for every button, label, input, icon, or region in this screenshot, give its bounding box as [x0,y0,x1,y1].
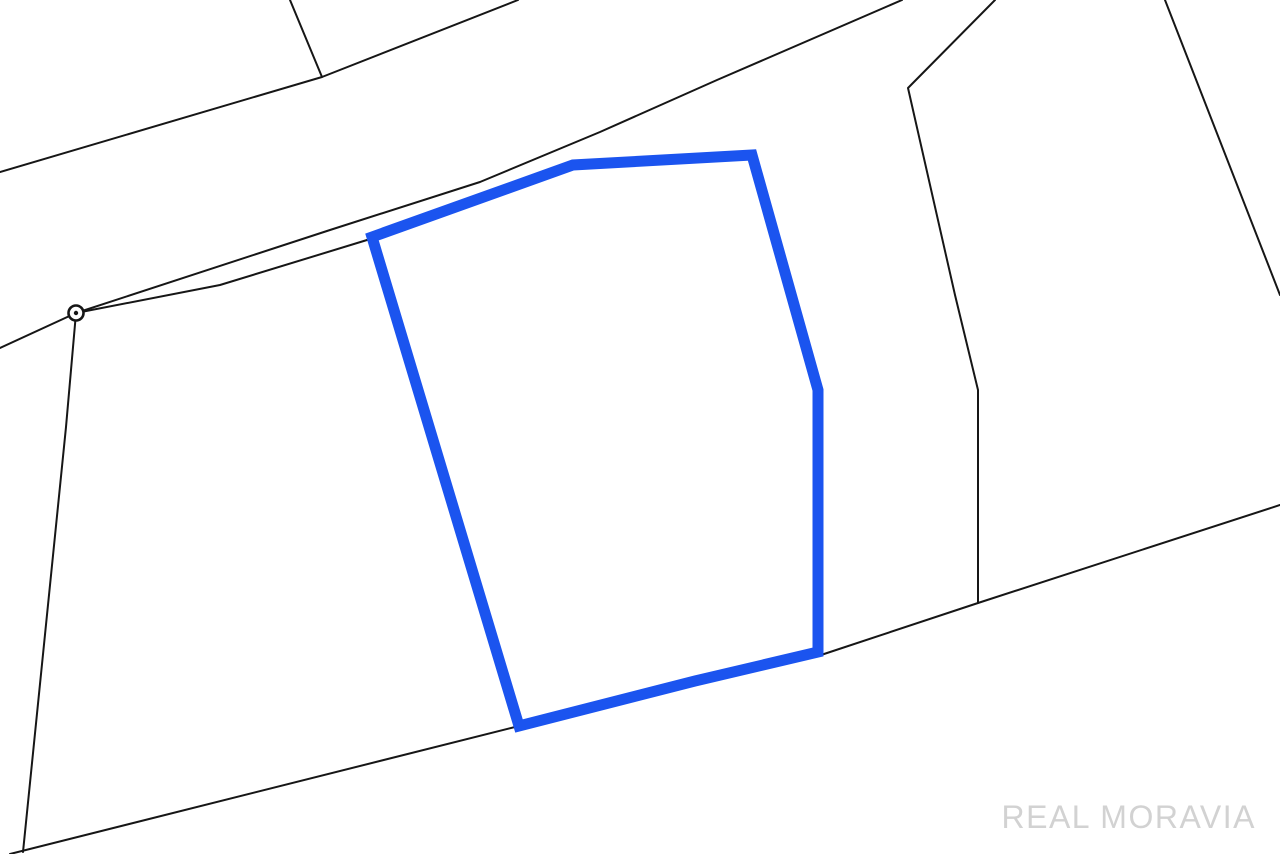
boundary-line-east-inner-boundary [908,0,995,603]
boundary-line-road-lower-edge [76,240,367,313]
cadastral-map: REAL MORAVIA [0,0,1280,854]
boundary-line-north-parcel-edge [0,0,518,172]
survey-point-marker [69,306,84,321]
boundary-line-east-outer-boundary [1165,0,1280,295]
highlighted-parcel-outline [372,155,818,726]
boundary-line-road-west-continuation [0,313,76,348]
parcel-boundary-lines [0,0,1280,854]
watermark-text: REAL MORAVIA [1002,801,1257,833]
boundary-line-north-spur [290,0,322,77]
map-canvas [0,0,1280,854]
survey-point-dot [74,311,78,315]
boundary-line-west-boundary [23,313,76,852]
